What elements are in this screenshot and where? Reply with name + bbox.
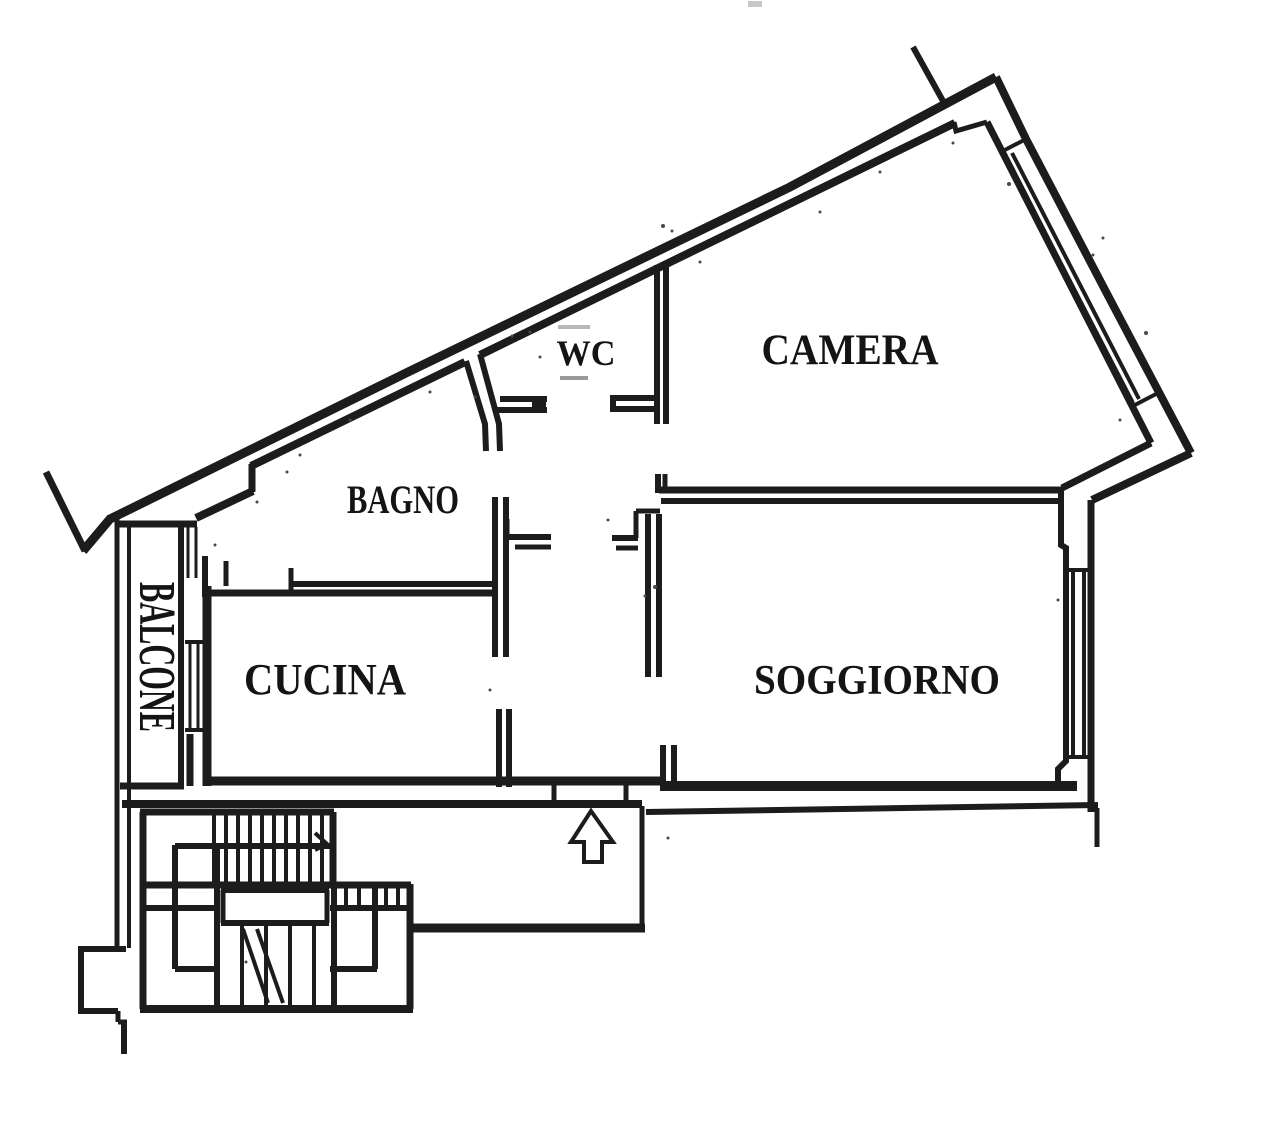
svg-text:WC: WC: [557, 333, 616, 373]
svg-text:BALCONE: BALCONE: [128, 582, 185, 732]
svg-text:SOGGIORNO: SOGGIORNO: [754, 658, 1000, 704]
svg-text:CAMERA: CAMERA: [762, 327, 939, 374]
svg-text:CUCINA: CUCINA: [244, 655, 406, 704]
svg-text:BAGNO: BAGNO: [347, 477, 459, 522]
